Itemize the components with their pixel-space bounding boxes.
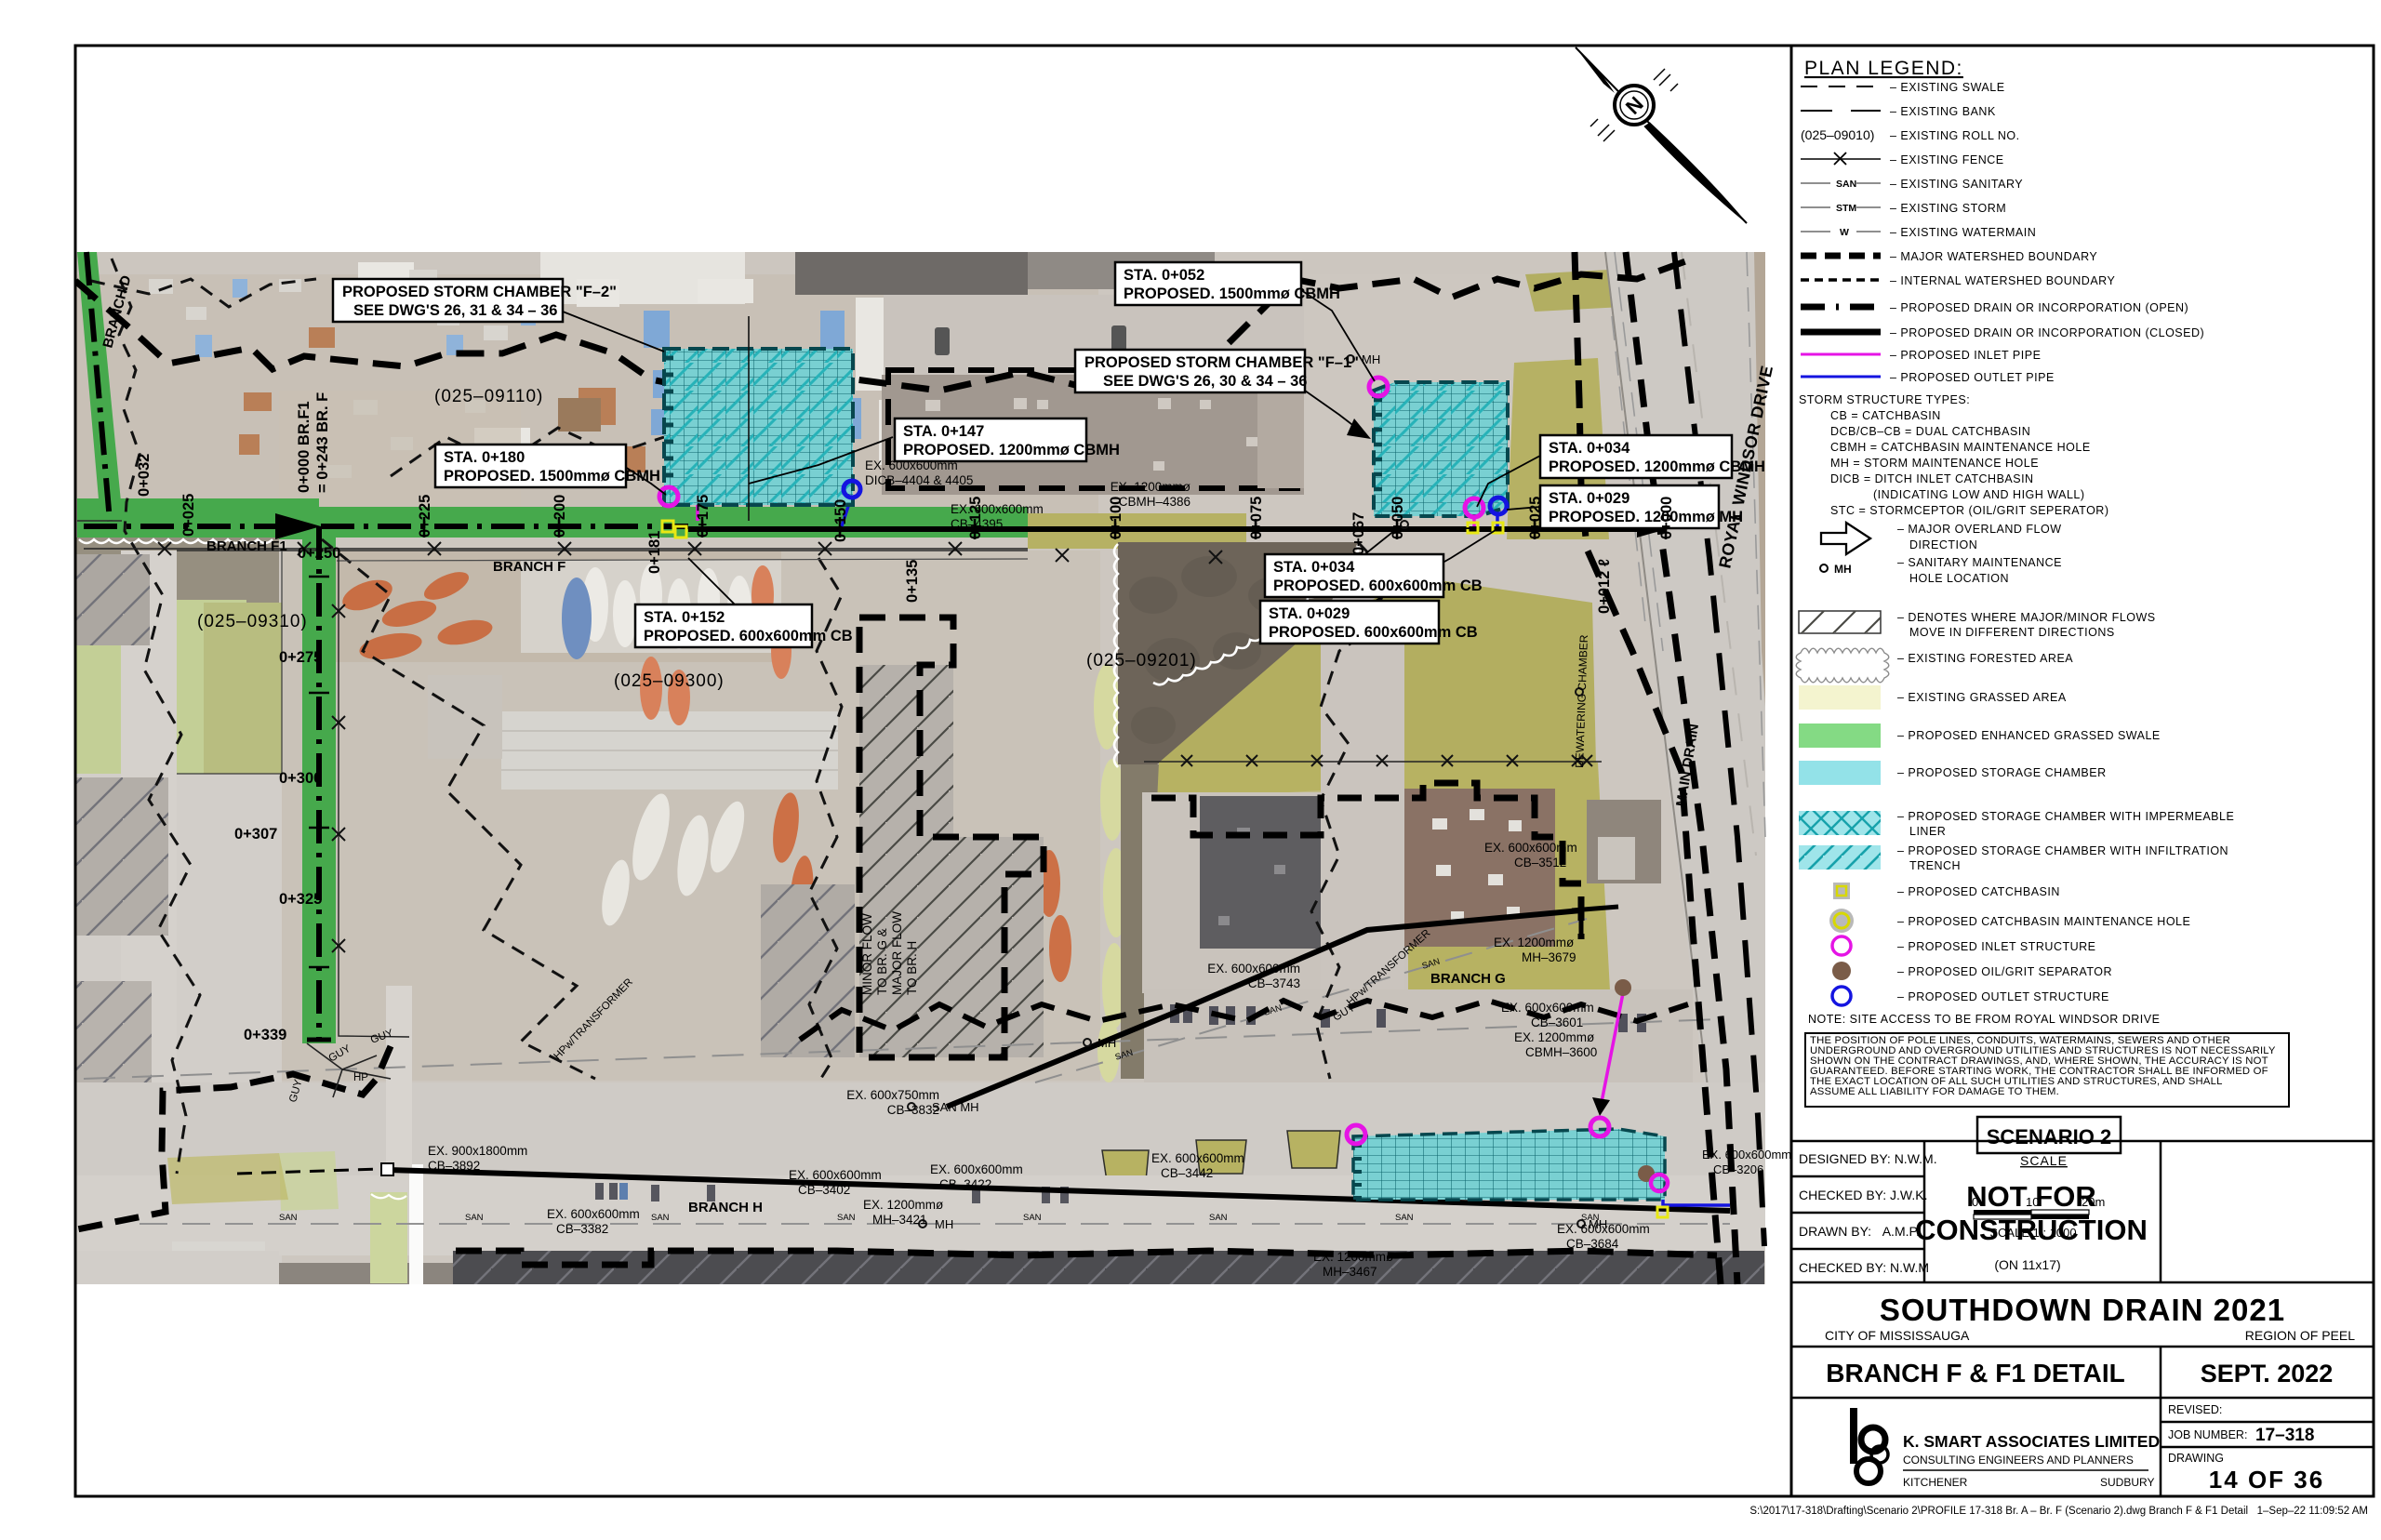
svg-text:SAN: SAN — [1209, 1213, 1228, 1223]
svg-text:0+050: 0+050 — [1390, 497, 1406, 539]
svg-text:0+250: 0+250 — [298, 545, 340, 562]
svg-text:BRANCH H: BRANCH H — [688, 1200, 763, 1215]
svg-text:STA. 0+034: STA. 0+034 — [1549, 440, 1630, 457]
svg-text:– EXISTING SANITARY: – EXISTING SANITARY — [1890, 178, 2023, 191]
svg-text:EX. 600x600mm: EX. 600x600mm — [1484, 841, 1577, 855]
svg-text:NOTE: SITE ACCESS TO BE FROM: NOTE: SITE ACCESS TO BE FROM ROYAL WINDS… — [1808, 1013, 2160, 1026]
svg-text:0+025: 0+025 — [1527, 497, 1544, 539]
svg-text:EX. 600x600mm: EX. 600x600mm — [1702, 1148, 1791, 1162]
svg-text:PROPOSED. 1500mmø CBMH: PROPOSED. 1500mmø CBMH — [444, 468, 660, 485]
svg-text:MH: MH — [1362, 352, 1380, 366]
svg-text:BRANCH F: BRANCH F — [493, 559, 565, 575]
svg-text:PROPOSED. 1500mmø CBMH: PROPOSED. 1500mmø CBMH — [1124, 285, 1340, 302]
svg-text:– PROPOSED STORAGE CHAMBER WI: – PROPOSED STORAGE CHAMBER WITH IMPERMEA… — [1897, 810, 2234, 823]
svg-text:– DENOTES WHERE MAJOR/MINOR F: – DENOTES WHERE MAJOR/MINOR FLOWS — [1897, 611, 2156, 624]
svg-text:PROPOSED. 600x600mm CB: PROPOSED. 600x600mm CB — [1269, 624, 1478, 641]
svg-text:EX. 600x600mm: EX. 600x600mm — [1207, 962, 1300, 976]
svg-text:W: W — [1840, 227, 1849, 238]
svg-text:0+175: 0+175 — [695, 495, 712, 538]
svg-text:PROPOSED STORM CHAMBER "F–1": PROPOSED STORM CHAMBER "F–1" — [1084, 354, 1359, 371]
svg-text:– PROPOSED INLET PIPE: – PROPOSED INLET PIPE — [1890, 349, 2041, 362]
svg-text:0+135: 0+135 — [904, 560, 921, 603]
svg-text:DICB = DITCH INLET CATCHBASIN: DICB = DITCH INLET CATCHBASIN — [1830, 472, 2034, 485]
svg-text:MINOR FLOW: MINOR FLOW — [860, 913, 874, 995]
svg-text:0+075: 0+075 — [1248, 497, 1265, 539]
svg-text:CB–3892: CB–3892 — [428, 1159, 480, 1173]
svg-text:CB–3422: CB–3422 — [939, 1177, 991, 1191]
svg-text:CB = CATCHBASIN: CB = CATCHBASIN — [1830, 409, 1941, 422]
svg-text:MH–3679: MH–3679 — [1522, 950, 1576, 964]
svg-text:MH: MH — [935, 1217, 953, 1231]
svg-text:– PROPOSED INLET STRUCTURE: – PROPOSED INLET STRUCTURE — [1897, 940, 2096, 953]
svg-text:EX. 1200mmø: EX. 1200mmø — [863, 1198, 943, 1212]
svg-text:SOUTHDOWN DRAIN 2021: SOUTHDOWN DRAIN 2021 — [1880, 1293, 2285, 1327]
svg-text:0+000: 0+000 — [1658, 497, 1675, 539]
svg-text:– EXISTING STORM: – EXISTING STORM — [1890, 202, 2006, 215]
svg-text:CHECKED BY: N.W.M: CHECKED BY: N.W.M — [1799, 1260, 1929, 1275]
svg-text:CB–3512: CB–3512 — [1514, 856, 1566, 870]
svg-text:EX. 600x600mm: EX. 600x600mm — [930, 1162, 1023, 1176]
svg-text:EX. 600x600mm: EX. 600x600mm — [789, 1168, 882, 1182]
svg-text:0+225: 0+225 — [417, 495, 433, 538]
svg-text:17–318: 17–318 — [2255, 1426, 2314, 1445]
svg-text:0+325: 0+325 — [279, 891, 322, 908]
svg-text:REGION OF PEEL: REGION OF PEEL — [2245, 1328, 2355, 1343]
svg-text:– PROPOSED STORAGE CHAMBER WI: – PROPOSED STORAGE CHAMBER WITH INFILTRA… — [1897, 844, 2228, 857]
svg-text:SEPT. 2022: SEPT. 2022 — [2201, 1360, 2334, 1387]
svg-text:STA. 0+029: STA. 0+029 — [1269, 605, 1350, 622]
svg-text:PROPOSED. 600x600mm CB: PROPOSED. 600x600mm CB — [1273, 577, 1483, 594]
svg-text:EX. 600x600mm: EX. 600x600mm — [951, 502, 1044, 516]
svg-text:SAN: SAN — [1836, 179, 1856, 190]
svg-text:SAN: SAN — [279, 1213, 298, 1223]
svg-text:SAN: SAN — [465, 1213, 484, 1223]
svg-text:MOVE IN DIFFERENT DIRECTIONS: MOVE IN DIFFERENT DIRECTIONS — [1909, 626, 2115, 639]
svg-text:0+307: 0+307 — [234, 826, 277, 843]
svg-text:EX. 600x600mm: EX. 600x600mm — [1151, 1151, 1244, 1165]
svg-text:– PROPOSED OUTLET PIPE: – PROPOSED OUTLET PIPE — [1890, 371, 2055, 384]
svg-text:EX. 600x600mm: EX. 600x600mm — [865, 458, 958, 472]
svg-text:(ON 11x17): (ON 11x17) — [1994, 1257, 2060, 1272]
svg-text:– PROPOSED STORAGE CHAMBER: – PROPOSED STORAGE CHAMBER — [1897, 766, 2107, 779]
svg-text:CB–3743: CB–3743 — [1248, 976, 1300, 990]
svg-text:PLAN LEGEND:: PLAN LEGEND: — [1804, 58, 1963, 79]
svg-text:EX. 1200mmø: EX. 1200mmø — [1313, 1250, 1393, 1264]
svg-text:HP: HP — [353, 1072, 368, 1083]
svg-text:MH–3467: MH–3467 — [1323, 1265, 1377, 1279]
svg-text:0+000 BR.F1: 0+000 BR.F1 — [296, 401, 313, 493]
svg-text:0+067: 0+067 — [1350, 512, 1367, 555]
svg-text:(025–09201): (025–09201) — [1086, 651, 1197, 670]
svg-text:CITY OF MISSISSAUGA: CITY OF MISSISSAUGA — [1825, 1328, 1970, 1343]
svg-text:– EXISTING WATERMAIN: – EXISTING WATERMAIN — [1890, 226, 2036, 239]
svg-text:LINER: LINER — [1909, 825, 1946, 838]
svg-text:STA. 0+180: STA. 0+180 — [444, 449, 525, 466]
svg-text:REVISED:: REVISED: — [2168, 1403, 2222, 1416]
svg-text:– PROPOSED DRAIN OR INCORPORA: – PROPOSED DRAIN OR INCORPORATION (OPEN) — [1890, 301, 2188, 314]
svg-text:EX. 600x750mm: EX. 600x750mm — [846, 1088, 939, 1102]
svg-text:STA. 0+029: STA. 0+029 — [1549, 490, 1629, 507]
svg-text:DIRECTION: DIRECTION — [1909, 538, 1977, 551]
svg-text:PROPOSED. 1200mmø MH: PROPOSED. 1200mmø MH — [1549, 509, 1743, 525]
svg-text:SAN: SAN — [651, 1213, 670, 1223]
svg-text:(025–09310): (025–09310) — [197, 612, 308, 631]
svg-text:0+032: 0+032 — [136, 454, 153, 497]
svg-text:K. SMART ASSOCIATES LIMITED: K. SMART ASSOCIATES LIMITED — [1903, 1432, 2160, 1451]
svg-text:– EXISTING FORESTED AREA: – EXISTING FORESTED AREA — [1897, 652, 2073, 665]
svg-text:– EXISTING ROLL NO.: – EXISTING ROLL NO. — [1890, 129, 2020, 142]
svg-text:MAJOR FLOW: MAJOR FLOW — [890, 911, 904, 995]
svg-text:DICB–4404 & 4405: DICB–4404 & 4405 — [865, 473, 973, 487]
svg-text:CB–3402: CB–3402 — [798, 1183, 850, 1197]
svg-text:– PROPOSED DRAIN OR INCORPORA: – PROPOSED DRAIN OR INCORPORATION (CLOSE… — [1890, 326, 2204, 339]
svg-text:PROPOSED. 600x600mm CB: PROPOSED. 600x600mm CB — [644, 628, 853, 644]
svg-text:– EXISTING BANK: – EXISTING BANK — [1890, 105, 1996, 118]
svg-text:0+200: 0+200 — [552, 495, 568, 538]
svg-text:– EXISTING SWALE: – EXISTING SWALE — [1890, 81, 2005, 94]
svg-text:STM: STM — [1836, 203, 1856, 214]
svg-text:EX. 1200mmø: EX. 1200mmø — [1111, 480, 1190, 494]
svg-text:STORM STRUCTURE TYPES:: STORM STRUCTURE TYPES: — [1799, 393, 1970, 406]
svg-text:STA. 0+052: STA. 0+052 — [1124, 267, 1204, 284]
svg-text:EX. 1200mmø: EX. 1200mmø — [1514, 1030, 1594, 1044]
svg-text:SCALE: SCALE — [2020, 1153, 2068, 1168]
svg-text:CB–3206: CB–3206 — [1713, 1162, 1763, 1176]
svg-text:JOB NUMBER:: JOB NUMBER: — [2168, 1428, 2247, 1441]
svg-text:SAN: SAN — [1581, 1213, 1600, 1223]
svg-text:MH: MH — [1097, 1036, 1116, 1050]
svg-text:EX. 600x600mm: EX. 600x600mm — [547, 1207, 640, 1221]
svg-text:MH = STORM MAINTENANCE HOLE: MH = STORM MAINTENANCE HOLE — [1830, 457, 2039, 470]
svg-text:PROPOSED. 1200mmø CBMH: PROPOSED. 1200mmø CBMH — [1549, 458, 1765, 475]
svg-text:TO BR. H: TO BR. H — [905, 941, 919, 995]
svg-text:DESIGNED BY: N.W.M.: DESIGNED BY: N.W.M. — [1799, 1151, 1937, 1166]
svg-text:– SANITARY MAINTENANCE: – SANITARY MAINTENANCE — [1897, 556, 2062, 569]
svg-text:STA. 0+034: STA. 0+034 — [1273, 559, 1355, 576]
svg-text:BRANCH F & F1 DETAIL: BRANCH F & F1 DETAIL — [1826, 1359, 2124, 1387]
svg-text:SAN: SAN — [1023, 1213, 1042, 1223]
svg-text:SAN: SAN — [1395, 1213, 1414, 1223]
svg-text:SUDBURY: SUDBURY — [2100, 1476, 2154, 1489]
svg-text:CB–3442: CB–3442 — [1161, 1166, 1213, 1180]
svg-text:STC = STORMCEPTOR (OIL/GRIT SE: STC = STORMCEPTOR (OIL/GRIT SEPERATOR) — [1830, 504, 2109, 517]
svg-text:EX. 600x600mm: EX. 600x600mm — [1501, 1001, 1594, 1015]
svg-text:CB–3684: CB–3684 — [1566, 1237, 1619, 1251]
svg-text:STA. 0+147: STA. 0+147 — [903, 423, 984, 440]
svg-text:(025–09110): (025–09110) — [434, 387, 543, 406]
svg-text:0+025: 0+025 — [180, 494, 197, 537]
svg-text:0+300: 0+300 — [279, 770, 322, 787]
svg-text:0+181: 0+181 — [646, 531, 663, 574]
svg-text:BRANCH F1: BRANCH F1 — [206, 538, 287, 554]
svg-text:CBMH–3600: CBMH–3600 — [1525, 1045, 1597, 1059]
svg-text:HOLE LOCATION: HOLE LOCATION — [1909, 572, 2009, 585]
svg-text:0+275: 0+275 — [279, 649, 322, 666]
svg-text:EX. 900x1800mm: EX. 900x1800mm — [428, 1144, 527, 1158]
svg-text:TO BR. G &: TO BR. G & — [875, 928, 889, 995]
svg-text:CBMH–4386: CBMH–4386 — [1119, 495, 1190, 509]
svg-text:– PROPOSED OUTLET STRUCTURE: – PROPOSED OUTLET STRUCTURE — [1897, 990, 2109, 1003]
svg-text:EX. 1200mmø: EX. 1200mmø — [1494, 936, 1574, 949]
svg-text:(025–09300): (025–09300) — [614, 671, 725, 691]
svg-text:CONSULTING ENGINEERS AND PLANN: CONSULTING ENGINEERS AND PLANNERS — [1903, 1454, 2134, 1467]
svg-text:TRENCH: TRENCH — [1909, 859, 1961, 872]
svg-text:SAN MH: SAN MH — [932, 1100, 979, 1114]
svg-text:14 OF 36: 14 OF 36 — [2209, 1466, 2324, 1494]
svg-text:0+150: 0+150 — [832, 499, 849, 542]
svg-text:= 0+243 BR. F: = 0+243 BR. F — [314, 392, 331, 493]
svg-text:DRAWN BY: A.M.P.: DRAWN BY: A.M.P. — [1799, 1224, 1920, 1239]
svg-text:PROPOSED. 1200mmø CBMH: PROPOSED. 1200mmø CBMH — [903, 442, 1120, 458]
svg-text:– EXISTING GRASSED AREA: – EXISTING GRASSED AREA — [1897, 691, 2067, 704]
svg-text:NOT FOR: NOT FOR — [1966, 1180, 2096, 1213]
svg-text:CHECKED BY: J.W.K.: CHECKED BY: J.W.K. — [1799, 1188, 1927, 1202]
svg-text:CB–3601: CB–3601 — [1531, 1016, 1583, 1029]
svg-text:PROPOSED STORM CHAMBER "F–2": PROPOSED STORM CHAMBER "F–2" — [342, 284, 617, 300]
svg-text:CB–4395: CB–4395 — [951, 517, 1003, 531]
svg-text:(INDICATING LOW AND HIGH WALL): (INDICATING LOW AND HIGH WALL) — [1873, 488, 2085, 501]
svg-text:0+339: 0+339 — [244, 1027, 286, 1043]
svg-text:S:\2017\17-318\Drafting\Scenar: S:\2017\17-318\Drafting\Scenario 2\PROFI… — [1749, 1506, 2368, 1517]
svg-text:DCB/CB–CB = DUAL CATCHBASIN: DCB/CB–CB = DUAL CATCHBASIN — [1830, 425, 2030, 438]
svg-text:MH: MH — [1834, 563, 1852, 576]
svg-text:– PROPOSED ENHANCED GRASSED S: – PROPOSED ENHANCED GRASSED SWALE — [1897, 729, 2161, 742]
svg-text:KITCHENER: KITCHENER — [1903, 1476, 1968, 1489]
svg-text:– MAJOR OVERLAND FLOW: – MAJOR OVERLAND FLOW — [1897, 523, 2062, 536]
svg-text:– PROPOSED CATCHBASIN MAINTEN: – PROPOSED CATCHBASIN MAINTENANCE HOLE — [1897, 915, 2190, 928]
svg-text:STA. 0+152: STA. 0+152 — [644, 609, 725, 626]
svg-text:– PROPOSED OIL/GRIT SEPARATOR: – PROPOSED OIL/GRIT SEPARATOR — [1897, 965, 2112, 978]
svg-text:– MAJOR WATERSHED BOUNDARY: – MAJOR WATERSHED BOUNDARY — [1890, 250, 2097, 263]
svg-text:SAN: SAN — [837, 1213, 856, 1223]
svg-text:CBMH = CATCHBASIN MAINTENANCE: CBMH = CATCHBASIN MAINTENANCE HOLE — [1830, 441, 2091, 454]
svg-text:– INTERNAL WATERSHED BOUNDARY: – INTERNAL WATERSHED BOUNDARY — [1890, 274, 2115, 287]
svg-text:– PROPOSED CATCHBASIN: – PROPOSED CATCHBASIN — [1897, 885, 2060, 898]
svg-text:CONSTRUCTION: CONSTRUCTION — [1915, 1214, 2148, 1246]
svg-text:SEE DWG'S 26, 30 & 34 – 36: SEE DWG'S 26, 30 & 34 – 36 — [1103, 373, 1307, 390]
svg-text:DRAWING: DRAWING — [2168, 1452, 2224, 1465]
svg-text:0+012 ℓ: 0+012 ℓ — [1596, 559, 1613, 614]
svg-text:SEE DWG'S 26, 31 & 34 – 36: SEE DWG'S 26, 31 & 34 – 36 — [353, 302, 557, 319]
svg-text:MH–3421: MH–3421 — [872, 1213, 927, 1227]
svg-text:SCENARIO 2: SCENARIO 2 — [1987, 1125, 2111, 1148]
svg-text:BRANCH G: BRANCH G — [1430, 971, 1506, 987]
svg-text:ASSUME ALL LIABILITY FOR DAMAG: ASSUME ALL LIABILITY FOR DAMAGE TO THEM. — [1810, 1086, 2059, 1097]
svg-text:CB–3382: CB–3382 — [556, 1222, 608, 1236]
svg-text:(025–09010): (025–09010) — [1801, 127, 1874, 142]
svg-text:– EXISTING FENCE: – EXISTING FENCE — [1890, 153, 2004, 166]
